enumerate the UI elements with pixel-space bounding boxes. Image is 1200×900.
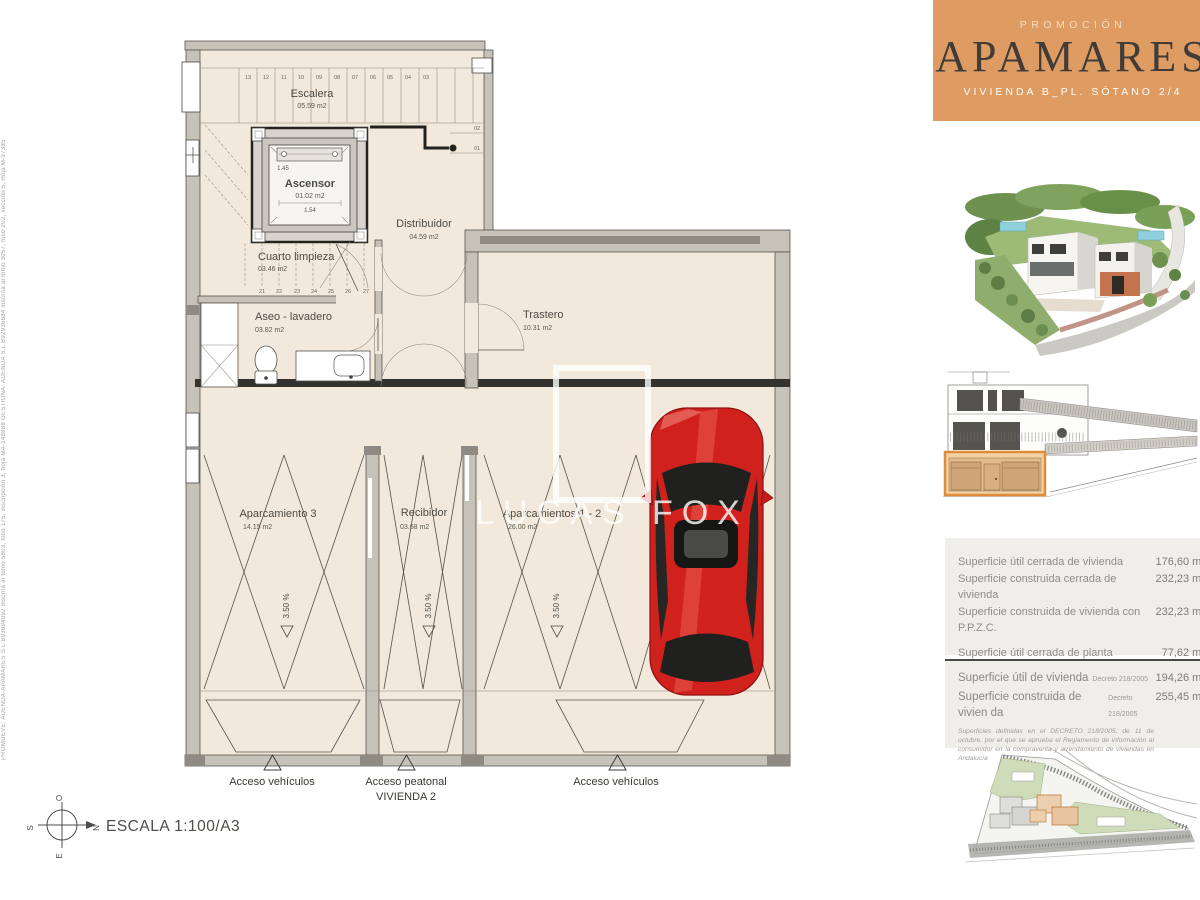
svg-text:N: N (92, 825, 101, 831)
svg-text:23: 23 (294, 289, 300, 295)
surface-table-decreto: Superficie útil de vivienda Decreto 218/… (945, 659, 1200, 748)
table-row: Superficie útil cerrada de vivienda 176,… (945, 554, 1200, 571)
stair-num: 13 (245, 75, 251, 81)
brand-title: APAMARES (933, 35, 1200, 79)
room-label-ascensor: Ascensor (285, 178, 336, 190)
svg-text:26: 26 (345, 289, 351, 295)
svg-text:22: 22 (276, 289, 282, 295)
svg-text:11: 11 (281, 75, 287, 81)
pool-right (1138, 231, 1164, 240)
svg-text:3.50 %: 3.50 % (552, 594, 561, 619)
svg-text:14.15 m2: 14.15 m2 (243, 524, 272, 531)
decreto-note: Decreto 218/2005 (1108, 691, 1155, 724)
svg-text:03: 03 (423, 75, 429, 81)
svg-text:E: E (55, 853, 64, 858)
room-label-aparcamiento3: Aparcamiento 3 (239, 508, 316, 520)
car-illustration (641, 408, 773, 695)
decreto-note: Decreto 218/2005 (1092, 672, 1148, 689)
svg-text:05.59 m2: 05.59 m2 (297, 103, 326, 110)
toilet-fixture (255, 346, 277, 374)
svg-text:10.31 m2: 10.31 m2 (523, 325, 552, 332)
svg-text:09: 09 (316, 75, 322, 81)
svg-text:O: O (55, 795, 64, 801)
brand-header: PROMOCIÓN APAMARES VIVIENDA B_PL. SÓTANO… (933, 0, 1200, 121)
svg-text:08: 08 (334, 75, 340, 81)
svg-text:24: 24 (311, 289, 317, 295)
compass-rose: O S N E (26, 795, 101, 859)
brand-eyebrow: PROMOCIÓN (933, 19, 1200, 31)
svg-text:04.59 m2: 04.59 m2 (409, 234, 438, 241)
table-row: Superficie construida de vivien da Decre… (945, 689, 1200, 724)
svg-text:12: 12 (263, 75, 269, 81)
elevator-depth-dim: 1.45 (277, 166, 289, 172)
elevator-width-dim: 1.54 (304, 208, 316, 214)
pool-left (1000, 222, 1026, 231)
svg-text:01: 01 (474, 146, 480, 152)
svg-text:04: 04 (405, 75, 411, 81)
svg-text:21: 21 (259, 289, 265, 295)
svg-text:03.82 m2: 03.82 m2 (255, 327, 284, 334)
vivienda-label: VIVIENDA 2 (376, 791, 436, 803)
svg-text:06: 06 (370, 75, 376, 81)
room-label-distribuidor: Distribuidor (396, 218, 452, 230)
svg-text:S: S (26, 825, 35, 830)
table-row: Superficie útil de vivienda Decreto 218/… (945, 670, 1200, 689)
svg-text:27: 27 (363, 289, 369, 295)
room-label-escalera: Escalera (291, 88, 335, 100)
surface-table-vivienda: Superficie útil cerrada de vivienda 176,… (945, 538, 1200, 655)
room-label-recibidor: Recibidor (401, 507, 448, 519)
brand-subtitle: VIVIENDA B_PL. SÓTANO 2/4 (933, 86, 1200, 98)
access-label-left: Acceso vehículos (229, 776, 315, 788)
svg-text:10: 10 (298, 75, 304, 81)
svg-text:07: 07 (352, 75, 358, 81)
site-plan-thumbnail (950, 748, 1200, 898)
room-label-aseo: Aseo - lavadero (255, 311, 332, 323)
slope-label: 3.50 % (282, 594, 291, 619)
svg-text:03.46 m2: 03.46 m2 (258, 266, 287, 273)
svg-text:01.02 m2: 01.02 m2 (295, 193, 324, 200)
access-label-right: Acceso vehículos (573, 776, 659, 788)
elevation-thumbnail (933, 366, 1200, 497)
room-label-trastero: Trastero (523, 309, 564, 321)
svg-text:03.68 m2: 03.68 m2 (400, 524, 429, 531)
svg-text:25: 25 (328, 289, 334, 295)
access-label-center: Acceso peatonal (365, 776, 446, 788)
highlighted-unit (1052, 807, 1078, 825)
plan-sheet: { "header": { "eyebrow": "PROMOCIÓN", "t… (0, 0, 1200, 900)
aerial-render-thumbnail (950, 170, 1200, 367)
room-label-cuarto: Cuarto limpieza (258, 251, 335, 263)
table-row: Superficie construida cerrada de viviend… (945, 571, 1200, 604)
table-row: Superficie construida de vivienda con P.… (945, 604, 1200, 637)
svg-text:05: 05 (387, 75, 393, 81)
highlighted-unit (1030, 810, 1046, 822)
scale-label: ESCALA 1:100/A3 (106, 818, 240, 835)
svg-text:02: 02 (474, 126, 480, 132)
floor-plan-drawing: 13 12 11 10 09 08 07 06 05 04 03 02 01 E… (0, 0, 935, 900)
watermark-text: LUCAS FOX (475, 494, 749, 532)
svg-text:3.50 %: 3.50 % (424, 594, 433, 619)
